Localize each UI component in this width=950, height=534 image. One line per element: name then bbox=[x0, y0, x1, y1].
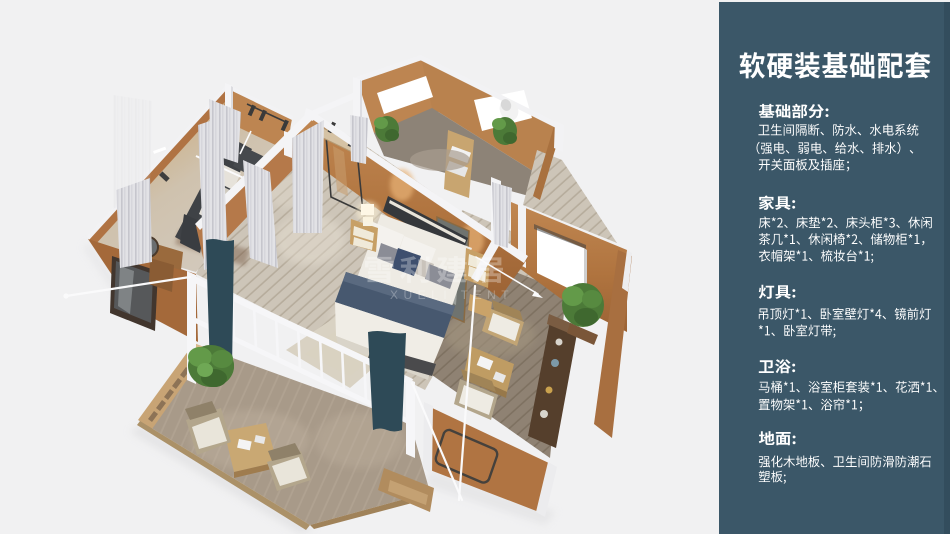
svg-text:XUELI TENT: XUELI TENT bbox=[390, 288, 514, 302]
